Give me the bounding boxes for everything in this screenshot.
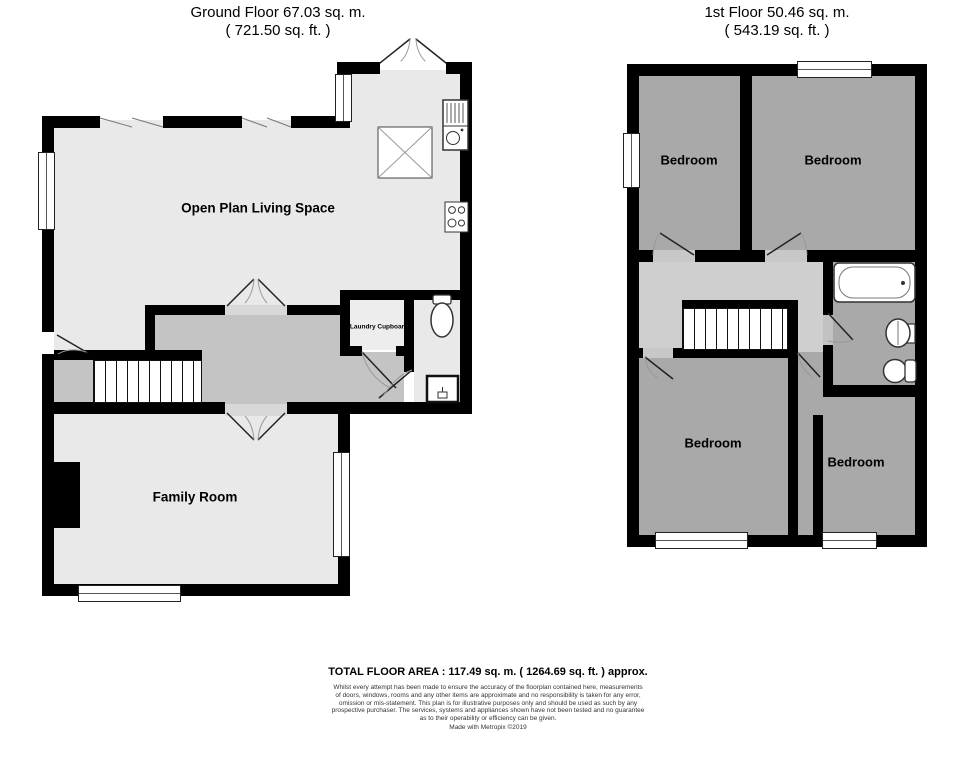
wall (740, 76, 752, 262)
wall (627, 64, 927, 76)
threshold (643, 348, 673, 358)
door-kitchen-french (380, 39, 446, 63)
floorplan-page: Ground Floor 67.03 sq. m. ( 721.50 sq. f… (0, 0, 980, 769)
ground-floor-subtitle: ( 721.50 sq. ft. ) (78, 22, 478, 39)
wall (163, 116, 242, 128)
disclaimer-text: Whilst every attempt has been made to en… (288, 684, 688, 723)
room-bathroom (833, 262, 915, 397)
wall (404, 290, 414, 372)
window (333, 452, 350, 557)
wall (823, 262, 833, 315)
window (38, 152, 55, 230)
wall (813, 415, 823, 535)
window (78, 585, 181, 602)
window (655, 532, 748, 549)
window (797, 61, 872, 78)
stairs-first-floor (682, 308, 788, 350)
wall (42, 402, 225, 414)
wall (695, 250, 765, 262)
wall (338, 402, 472, 414)
wall (340, 346, 362, 356)
window (822, 532, 877, 549)
threshold (653, 250, 695, 262)
stairs-top-edge (93, 352, 202, 360)
wall (42, 354, 54, 596)
first-floor-title: 1st Floor 50.46 sq. m. (577, 4, 977, 21)
wall (639, 250, 653, 262)
wall (788, 300, 798, 535)
wall (42, 116, 100, 128)
room-bedroom-1 (639, 76, 740, 262)
open-plan-living-label: Open Plan Living Space (181, 201, 335, 216)
bedroom-1-label: Bedroom (660, 153, 717, 168)
room-kitchen-area (338, 70, 460, 292)
room-open-plan-living (54, 120, 350, 315)
stairs-top-edge (682, 300, 788, 308)
wall (145, 305, 225, 315)
threshold (823, 315, 833, 345)
bedroom-4-label: Bedroom (827, 455, 884, 470)
window (623, 133, 640, 188)
wall (639, 348, 643, 358)
wall (823, 385, 915, 397)
threshold (225, 305, 287, 315)
threshold (225, 404, 287, 416)
credit-text: Made with Metropix ©2019 (288, 724, 688, 731)
wall (807, 250, 915, 262)
family-room-label: Family Room (153, 490, 238, 505)
window (335, 74, 352, 122)
room-laundry-cupboard (346, 294, 412, 350)
wall (915, 64, 927, 547)
wall (340, 290, 350, 315)
stairs-ground-floor (93, 360, 202, 403)
total-floor-area: TOTAL FLOOR AREA : 117.49 sq. m. ( 1264.… (188, 666, 788, 678)
chimney-breast (54, 462, 80, 528)
wall (460, 62, 472, 414)
laundry-cupboard-label: Laundry Cupboard (350, 324, 408, 331)
room-bedroom-2 (752, 76, 915, 262)
ground-floor-title: Ground Floor 67.03 sq. m. (78, 4, 478, 21)
room-wc (414, 294, 460, 406)
bedroom-3-label: Bedroom (684, 436, 741, 451)
first-floor-subtitle: ( 543.19 sq. ft. ) (577, 22, 977, 39)
bedroom-2-label: Bedroom (804, 153, 861, 168)
threshold (765, 250, 807, 262)
